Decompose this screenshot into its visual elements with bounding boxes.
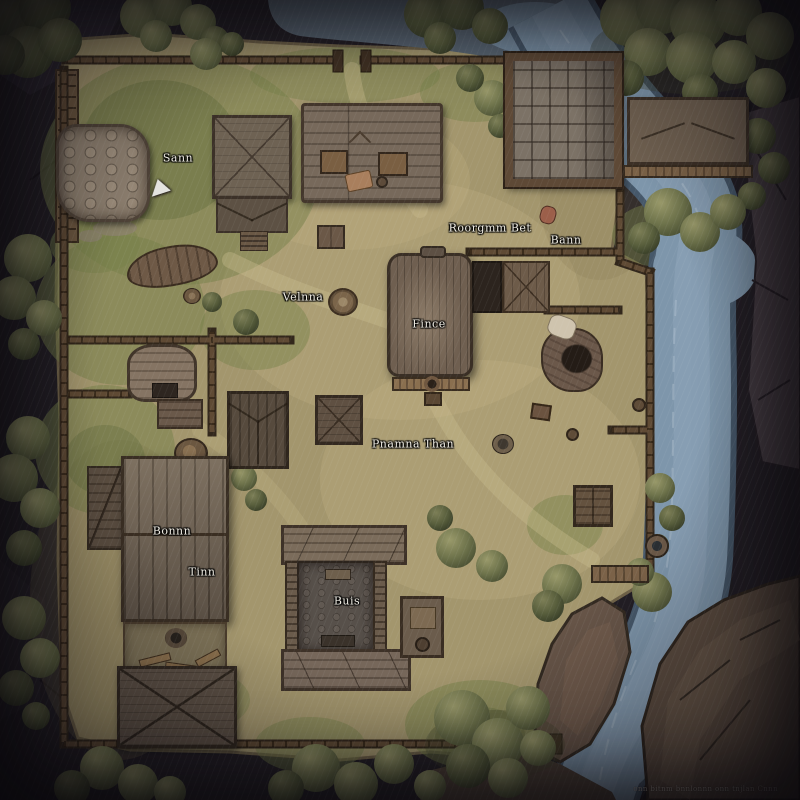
courtyard-house-roof-north — [281, 525, 407, 565]
courtyard-house-wall-east — [373, 561, 387, 653]
rooftop-table — [378, 152, 408, 176]
dark-stall — [472, 261, 502, 313]
roof-ridge-line — [217, 202, 254, 221]
well — [645, 534, 669, 558]
ruined-stone-building — [56, 124, 150, 222]
stone-circle — [328, 288, 358, 316]
small-hut — [315, 395, 363, 445]
dug-pit — [492, 434, 514, 454]
pot — [415, 637, 430, 652]
barn-chimney — [420, 246, 446, 258]
roof-ridge-line — [257, 420, 259, 464]
large-rooftop-building — [301, 103, 443, 203]
tiled-courtyard — [505, 53, 622, 187]
roof-ridge-line — [256, 403, 288, 424]
rooftop-pot — [376, 176, 388, 188]
courtyard-house-roof-south — [281, 649, 411, 691]
fire-pit — [165, 628, 187, 648]
small-shed — [157, 399, 203, 429]
barrel — [632, 398, 646, 412]
map-label-buis: Buis — [334, 595, 360, 608]
table — [325, 569, 351, 580]
barn-annex — [87, 466, 123, 550]
large-plank-barn — [121, 456, 229, 622]
wooden-walkway — [623, 165, 753, 178]
rooftop-cloth — [344, 169, 373, 192]
roof-ridge-line — [641, 122, 685, 140]
river-dock — [591, 565, 649, 583]
barn-step — [424, 392, 442, 406]
stairs — [240, 231, 268, 251]
covered-wagon — [127, 344, 197, 402]
courtyard-house-annex — [400, 596, 444, 658]
hip-roof-house — [212, 115, 292, 199]
map-label-bann: Bann — [551, 234, 582, 247]
top-right-building — [627, 97, 749, 165]
map-label-velnna: Velnna — [283, 291, 324, 304]
hip-house-extension — [216, 197, 288, 233]
round-hatch — [424, 376, 440, 392]
map-label-fince: Fince — [412, 318, 445, 331]
map-label-tinn: Tinn — [188, 566, 215, 579]
rooftop-hatch-mark — [349, 131, 372, 154]
tree-stump — [183, 288, 201, 304]
wagon-window — [152, 383, 178, 398]
barn-walkway — [392, 377, 470, 391]
crate — [530, 403, 552, 422]
braced-door-room — [502, 261, 550, 313]
watermark-text: onn bitnm bnnlonnn onn tnjlan Cnnn — [633, 785, 778, 793]
roof-ridge-line — [691, 122, 735, 140]
crate — [317, 225, 345, 249]
corner-hip-roof-building — [117, 666, 237, 748]
central-barn — [387, 253, 473, 377]
roof-ridge-line — [228, 403, 260, 424]
map-label-sann: Sann — [163, 152, 193, 165]
gable-roof-house — [227, 391, 289, 469]
roof-ridge-line — [251, 202, 288, 221]
riverside-shed — [573, 485, 613, 527]
map-label-pnamna-than: Pnamna Than — [372, 438, 454, 451]
rooftop-table — [320, 150, 348, 174]
bench — [321, 635, 355, 647]
map-label-roorgmm-bet: Roorgmm Bet — [449, 222, 532, 235]
map-label-bonnn: Bonnn — [153, 525, 191, 538]
battle-map: Sann Roorgmm Bet Bann Velnna Fince Pnamn… — [0, 0, 800, 800]
barrel — [566, 428, 579, 441]
wood-debris — [195, 648, 222, 667]
rug — [410, 607, 436, 629]
